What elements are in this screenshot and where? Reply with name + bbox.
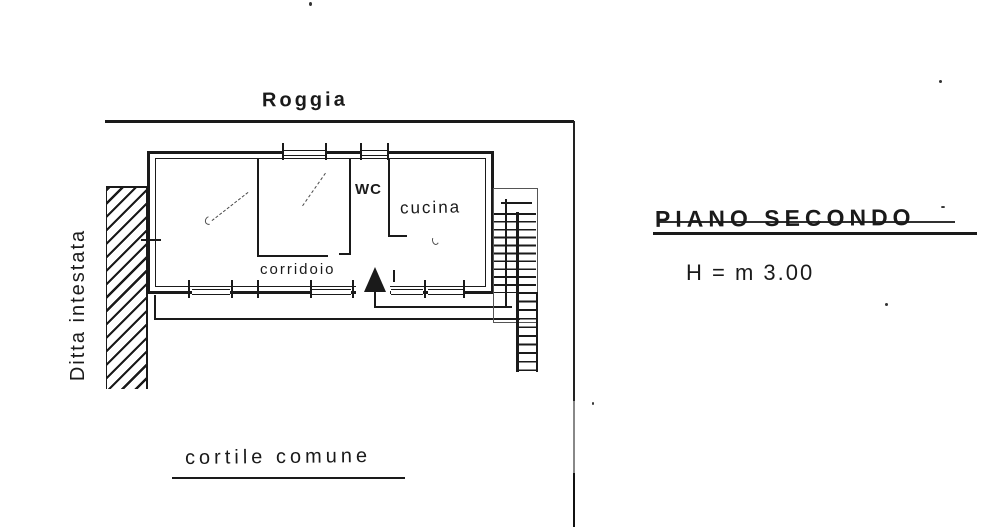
scan-speck [309,2,312,6]
window-tick [282,143,284,160]
scan-speck [592,402,594,405]
window-tick [188,280,190,298]
room-label-corridor: corridoio [260,261,336,278]
balcony-left-edge [154,295,156,320]
partition-midroom-bottom [257,255,328,257]
window-tick [360,143,362,160]
entrance-landing-line [376,306,512,308]
window [283,150,327,156]
window-tick [231,280,233,298]
window [192,289,230,296]
stair-top-bar [501,202,532,204]
window-tick [352,280,354,298]
scan-speck [885,303,888,306]
roggia-label: Roggia [262,89,348,113]
room-label-wc: WC [355,181,382,198]
floor-title-strike-line [657,221,955,223]
window [312,289,351,296]
balcony-line [155,318,520,320]
window-tick [141,239,161,241]
window-tick [424,280,426,298]
floor-title-underline [653,232,977,235]
courtyard-label: cortile comune [185,445,371,470]
scan-speck [939,80,942,83]
lot-boundary-right [573,121,575,401]
window-tick [463,280,465,298]
window [361,150,389,156]
lot-boundary-right [573,473,575,527]
partition-wc-right-foot [388,235,407,237]
window-tick [387,143,389,160]
window-tick [310,280,312,298]
partition-wc-right [388,159,390,236]
partition-wc-left-foot [339,253,351,255]
roggia-boundary-line [105,120,574,123]
ditta-intestata-label: Ditta intestata [65,202,91,408]
stair-rail [505,199,507,308]
room-label-kitchen: cucina [400,197,461,218]
door-jamb-tick [393,270,395,282]
window-tick [257,280,259,298]
partition-midroom-left [257,159,259,257]
courtyard-underline [172,477,405,479]
window [391,289,423,296]
stair-treads-upper [494,213,536,293]
stair-treads-lower [516,292,538,372]
floor-title: PIANO SECONDO [655,204,916,233]
scan-speck [941,206,945,208]
party-wall-hatch [106,186,148,389]
partition-wc-left [349,159,351,255]
entrance-arrow-icon [364,267,386,292]
window [428,289,463,296]
floor-plan-sheet: Roggia Ditta intestata [0,0,1000,530]
floor-height-note: H = m 3.00 [686,260,814,286]
window-tick [325,143,327,160]
lot-boundary-right [573,401,575,473]
